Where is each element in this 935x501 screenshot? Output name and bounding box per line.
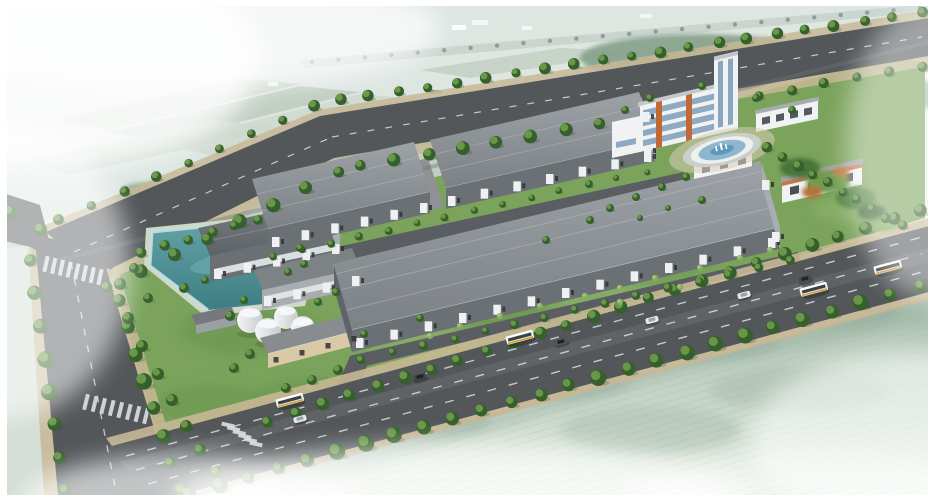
loading-door xyxy=(293,289,301,299)
window xyxy=(468,315,471,320)
window xyxy=(502,307,505,312)
bush xyxy=(617,299,623,305)
window xyxy=(653,154,656,159)
bush xyxy=(617,285,623,291)
window xyxy=(571,290,574,295)
window xyxy=(605,282,608,287)
window xyxy=(370,219,373,224)
distant-tree xyxy=(733,22,737,26)
window xyxy=(341,246,344,251)
distant-tree xyxy=(627,32,631,36)
distant-tree xyxy=(548,39,552,43)
office-accent-column xyxy=(656,101,662,148)
distant-tree xyxy=(680,27,684,31)
window xyxy=(771,182,774,187)
loading-door xyxy=(481,189,489,199)
window xyxy=(326,343,331,349)
window xyxy=(399,332,402,337)
loading-door xyxy=(699,255,707,265)
distant-tree xyxy=(601,34,605,38)
window xyxy=(490,191,493,196)
distant-tree xyxy=(891,8,895,12)
loading-door xyxy=(772,232,780,242)
distant-tree xyxy=(495,43,499,47)
window xyxy=(365,340,368,345)
window xyxy=(653,148,656,153)
bush xyxy=(677,284,683,290)
loading-door xyxy=(214,269,222,279)
loading-door xyxy=(631,271,639,281)
loading-door xyxy=(331,223,339,233)
aerial-rendering-photo xyxy=(0,0,935,501)
window xyxy=(274,357,279,363)
loading-door xyxy=(642,112,650,122)
window xyxy=(361,278,364,283)
distant-tree xyxy=(706,25,710,29)
window xyxy=(429,205,432,210)
office-accent-column xyxy=(686,94,692,141)
bush xyxy=(497,313,503,319)
window xyxy=(281,239,284,244)
window xyxy=(708,257,711,262)
window xyxy=(253,265,256,270)
window xyxy=(651,114,654,119)
window xyxy=(743,248,746,253)
bush xyxy=(457,323,463,329)
loading-door xyxy=(302,230,310,240)
loading-door xyxy=(390,330,398,340)
window xyxy=(223,271,226,276)
office-west-wing xyxy=(612,116,640,158)
window xyxy=(588,169,591,174)
window xyxy=(399,212,402,217)
window xyxy=(312,252,315,257)
distant-tree xyxy=(521,41,525,45)
loading-door xyxy=(459,313,467,323)
loading-door xyxy=(272,237,280,247)
industrial-park-scene xyxy=(0,0,935,501)
window xyxy=(302,291,305,296)
distant-tree xyxy=(574,36,578,40)
window xyxy=(300,350,305,356)
loading-door xyxy=(528,296,536,306)
bush xyxy=(697,265,703,271)
window xyxy=(282,259,285,264)
distant-vehicle xyxy=(452,25,466,30)
loading-door xyxy=(356,338,364,348)
loading-door xyxy=(596,280,604,290)
bush xyxy=(652,275,658,281)
window xyxy=(781,234,784,239)
loading-door xyxy=(665,263,673,273)
window xyxy=(434,323,437,328)
distant-tree xyxy=(812,15,816,19)
distant-tree xyxy=(442,48,446,52)
loading-door xyxy=(361,217,369,227)
distant-tree xyxy=(759,20,763,24)
bush xyxy=(582,293,588,299)
loading-door xyxy=(390,210,398,220)
window xyxy=(457,198,460,203)
office-tower xyxy=(714,51,738,135)
distant-tree xyxy=(468,46,472,50)
loading-door xyxy=(562,288,570,298)
loading-door xyxy=(323,283,331,293)
loading-door xyxy=(579,167,587,177)
distant-tree xyxy=(865,10,869,14)
window xyxy=(273,298,276,303)
window xyxy=(352,336,357,342)
window xyxy=(640,273,643,278)
window xyxy=(340,225,343,230)
loading-door xyxy=(611,159,619,169)
loading-door xyxy=(546,174,554,184)
loading-door xyxy=(762,180,770,190)
loading-door xyxy=(448,196,456,206)
bush xyxy=(427,333,433,339)
loading-door xyxy=(244,263,252,273)
bush xyxy=(737,255,743,261)
window xyxy=(311,232,314,237)
distant-tree xyxy=(786,18,790,22)
window xyxy=(522,183,525,188)
loading-door xyxy=(352,276,360,286)
loading-door xyxy=(420,203,428,213)
loading-door xyxy=(513,181,521,191)
window xyxy=(537,298,540,303)
window xyxy=(620,161,623,166)
window xyxy=(674,265,677,270)
distant-tree xyxy=(653,29,657,33)
window xyxy=(555,176,558,181)
loading-door xyxy=(644,146,652,156)
bush xyxy=(767,247,773,253)
loading-door xyxy=(264,296,272,306)
loading-door xyxy=(425,321,433,331)
bush xyxy=(537,303,543,309)
distant-tree xyxy=(838,13,842,17)
